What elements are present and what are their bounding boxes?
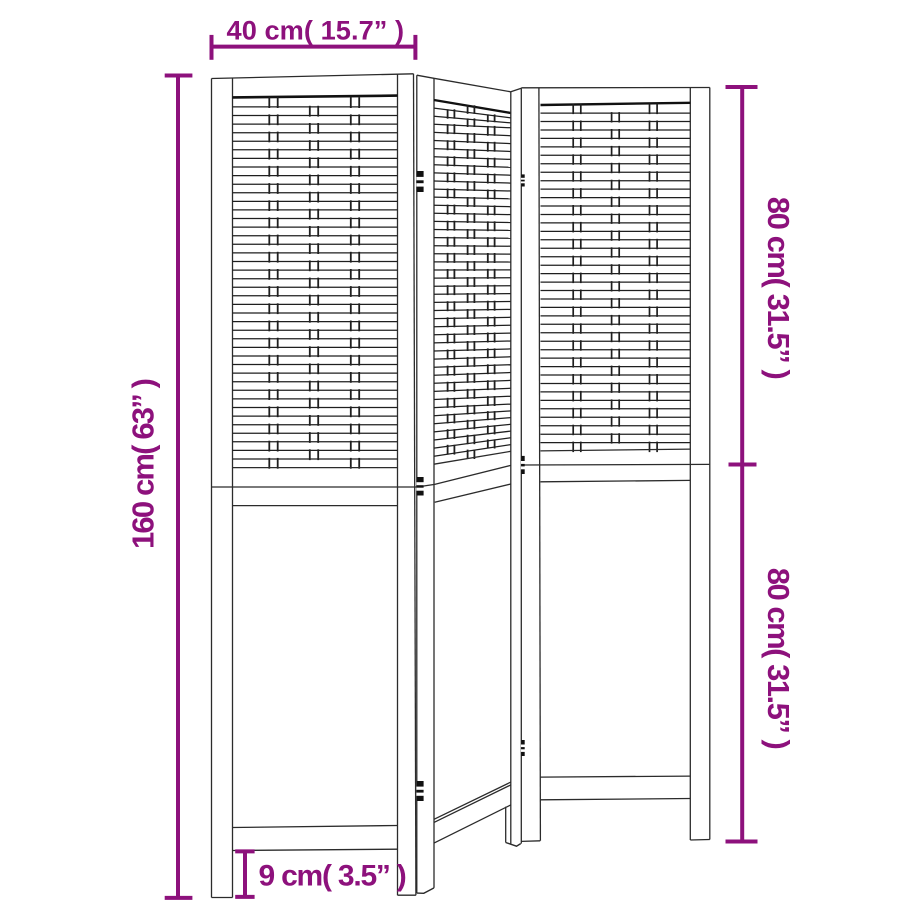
svg-text:160 cm( 63” ): 160 cm( 63” ) (126, 378, 161, 549)
svg-text:40 cm( 15.7” ): 40 cm( 15.7” ) (227, 15, 405, 46)
svg-text:80 cm( 31.5” ): 80 cm( 31.5” ) (761, 197, 796, 380)
svg-text:80 cm( 31.5” ): 80 cm( 31.5” ) (761, 568, 796, 750)
svg-text:9 cm( 3.5” ): 9 cm( 3.5” ) (259, 859, 407, 892)
